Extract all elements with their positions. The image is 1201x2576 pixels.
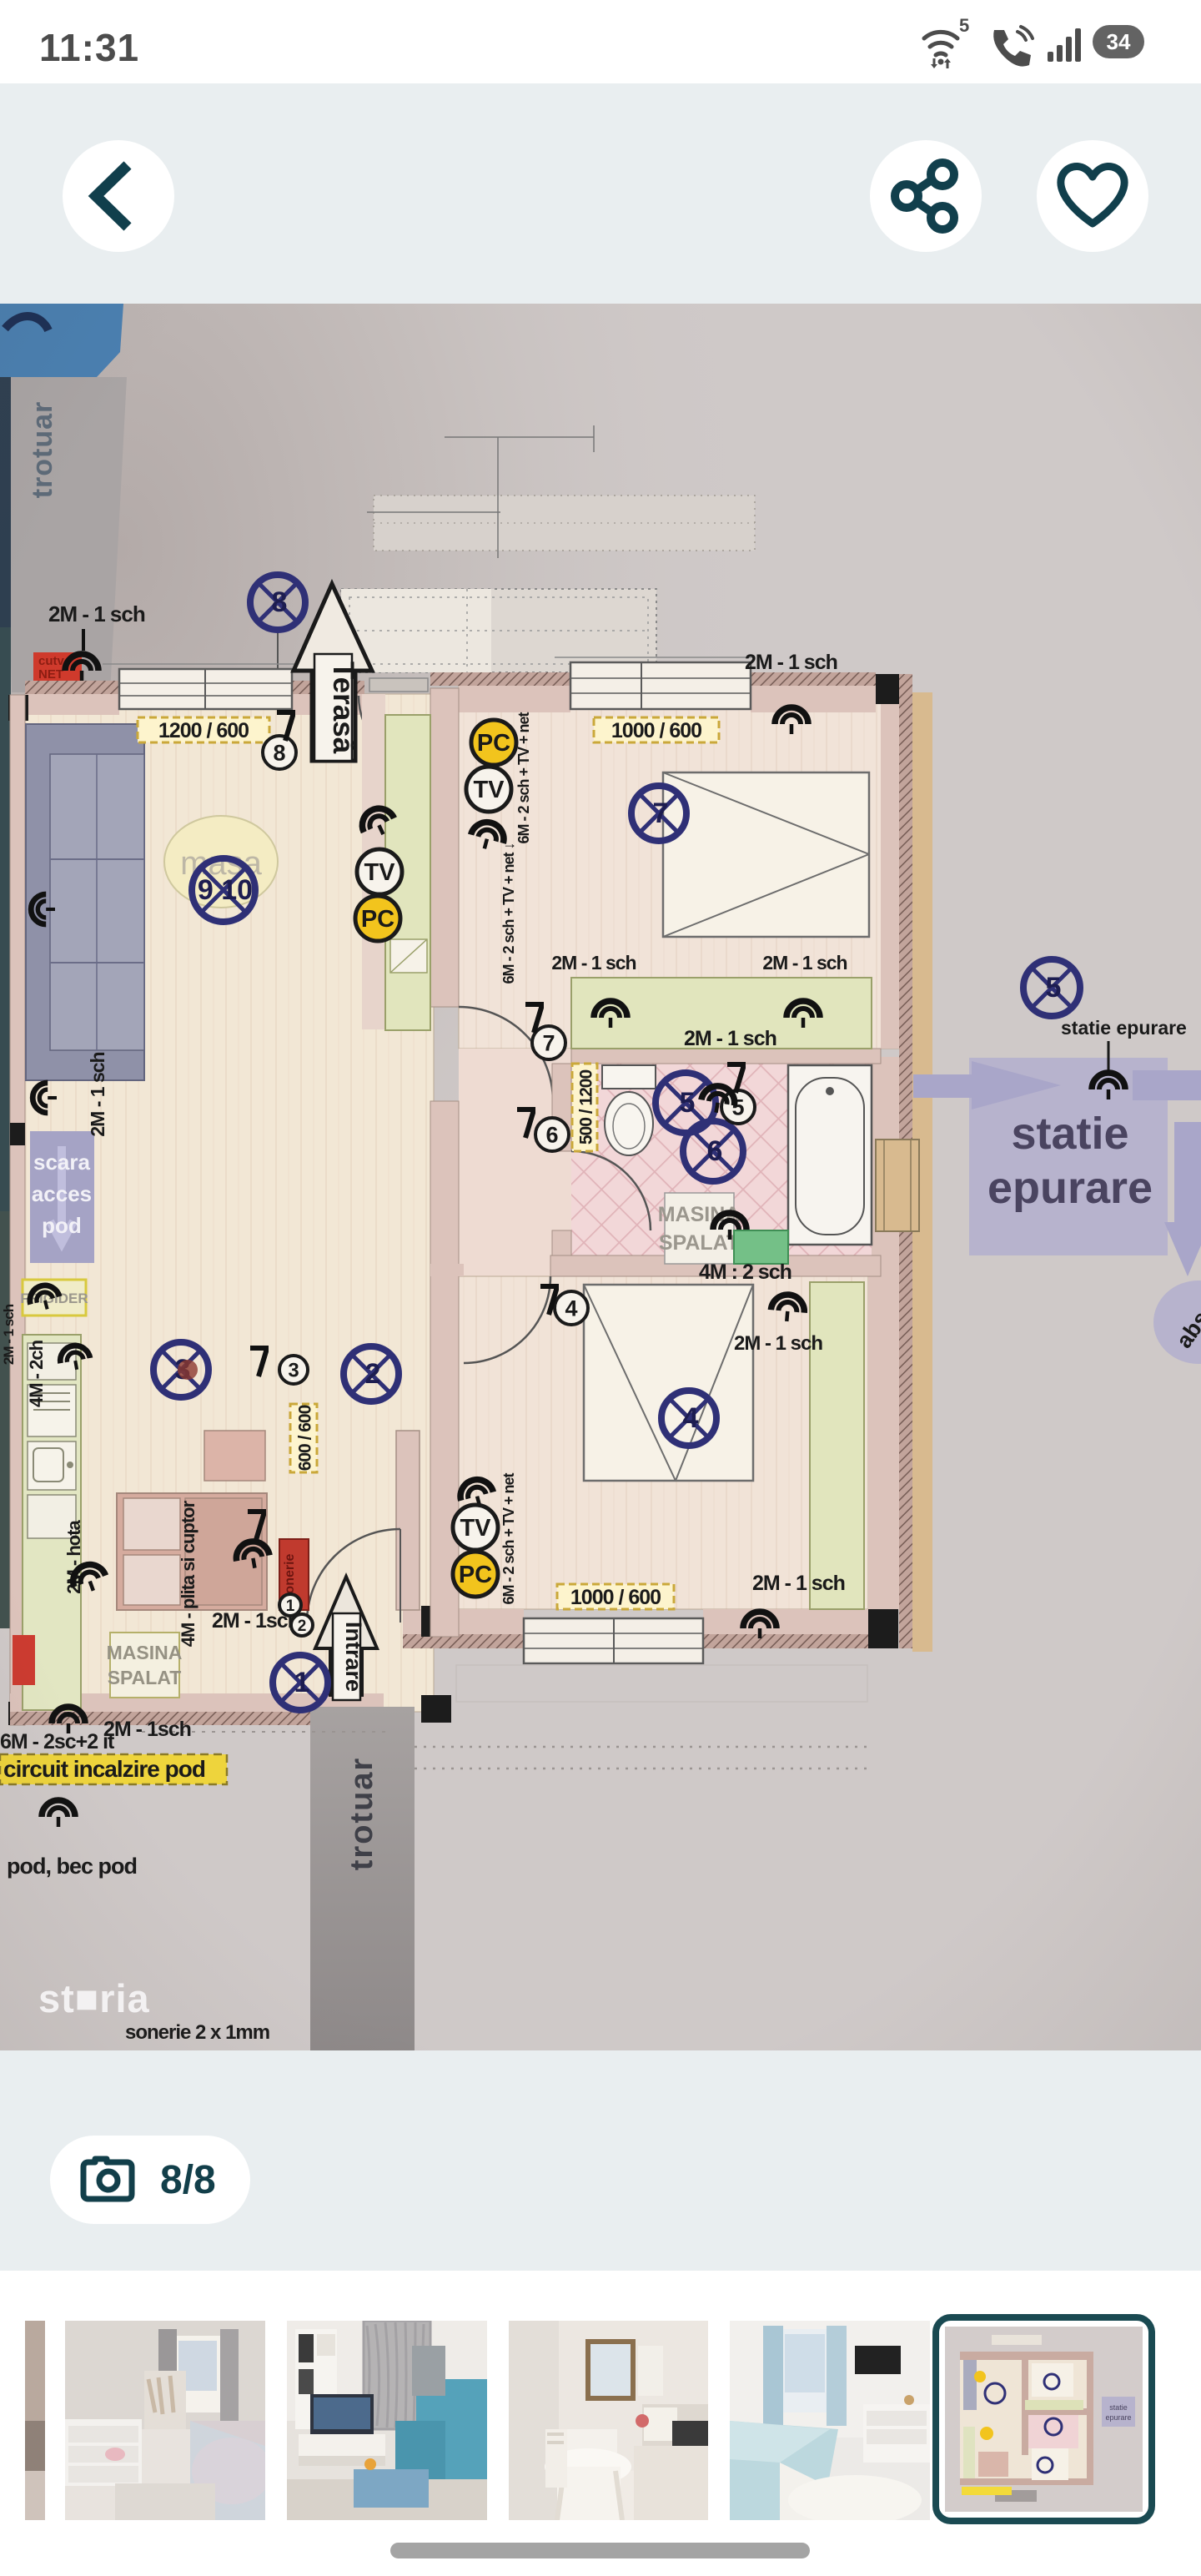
svg-text:5: 5 <box>959 18 969 36</box>
svg-text:st■ria: st■ria <box>38 1976 150 2020</box>
svg-text:34: 34 <box>1107 29 1131 54</box>
svg-text:statie: statie <box>1109 2403 1128 2412</box>
svg-text:epurare: epurare <box>1105 2413 1131 2422</box>
